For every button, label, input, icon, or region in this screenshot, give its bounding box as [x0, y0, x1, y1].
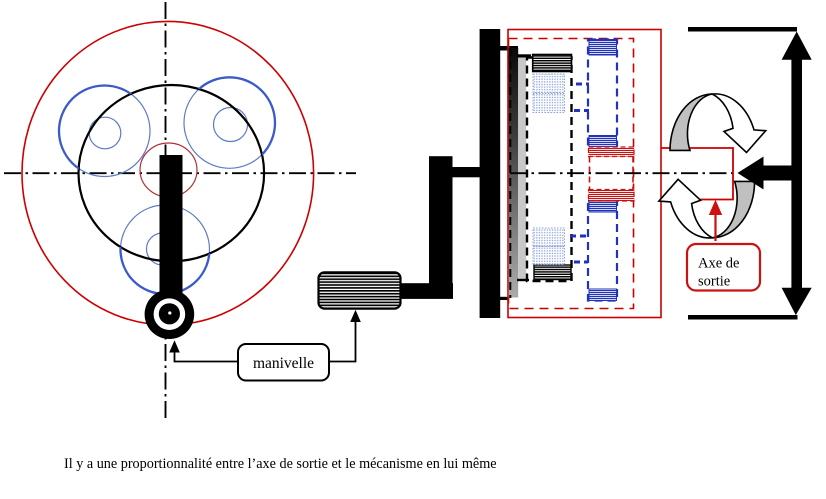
- svg-text:Il y a une proportionnalité en: Il y a une proportionnalité entre l’axe …: [64, 456, 497, 472]
- svg-text:sortie: sortie: [698, 274, 730, 290]
- svg-text:manivelle: manivelle: [253, 355, 314, 372]
- svg-text:Axe de: Axe de: [698, 256, 739, 272]
